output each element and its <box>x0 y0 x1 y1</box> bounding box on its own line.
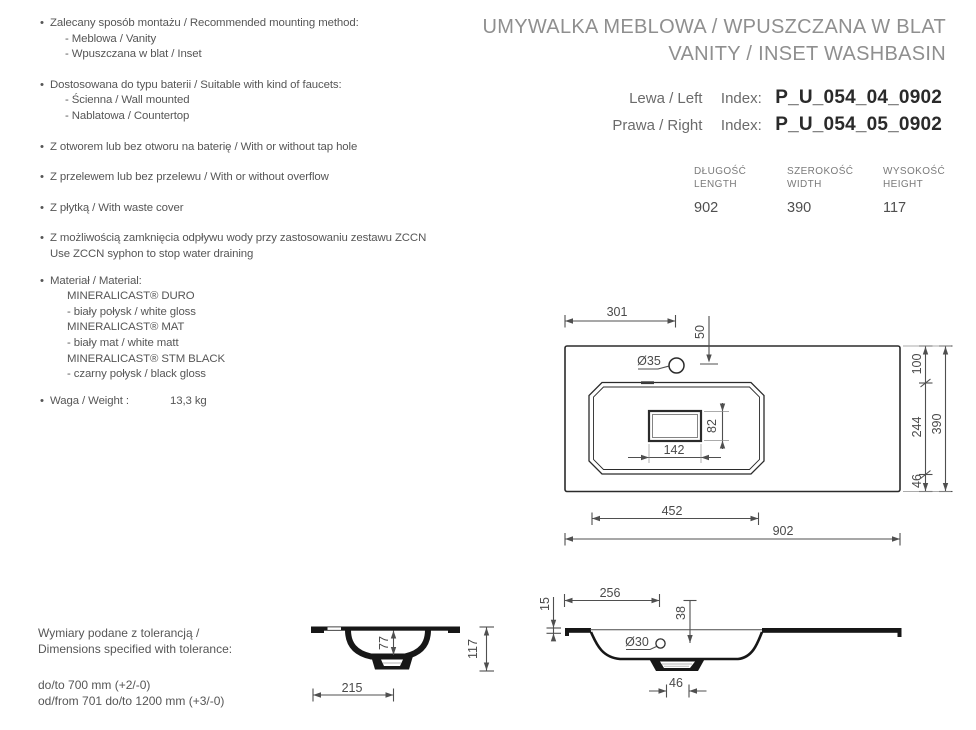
dim-301: 301 <box>607 306 628 318</box>
feature-waste-cover: •Z płytką / With waste cover <box>40 201 522 217</box>
dim-244: 244 <box>911 417 923 438</box>
index-right-code: P_U_054_05_0902 <box>775 114 942 135</box>
page-title: UMYWALKA MEBLOWA / WPUSZCZANA W BLAT VAN… <box>483 14 946 68</box>
feature-mounting: •Zalecany sposób montażu / Recommended m… <box>40 16 522 63</box>
page-title-line1: UMYWALKA MEBLOWA / WPUSZCZANA W BLAT <box>483 14 946 41</box>
dim-46-side: 46 <box>669 677 683 689</box>
bullet-icon: • <box>40 140 50 156</box>
dim-256: 256 <box>600 587 621 599</box>
dim-dia30: Ø30 <box>625 636 649 648</box>
dim-215: 215 <box>342 682 363 694</box>
width-label-pl: SZEROKOŚĆ <box>787 165 883 178</box>
index-row-right: Prawa / Right Index: P_U_054_05_0902 <box>612 114 942 141</box>
dim-50: 50 <box>694 325 706 339</box>
index-right-label: Prawa / Right <box>612 117 702 134</box>
page-title-line2: VANITY / INSET WASHBASIN <box>483 41 946 68</box>
size-table: DŁUGOŚĆ LENGTH 902 SZEROKOŚĆ WIDTH 390 W… <box>694 165 945 216</box>
feature-faucets-sub1: - Ścienna / Wall mounted <box>40 93 522 109</box>
feature-zccn: •Z możliwością zamknięcia odpływu wody p… <box>40 231 522 262</box>
feature-overflow-text: Z przelewem lub bez przelewu / With or w… <box>50 171 329 183</box>
tolerance-rule1: do/to 700 mm (+2/-0) <box>38 678 232 694</box>
height-value: 117 <box>883 200 945 216</box>
dim-142: 142 <box>664 444 685 456</box>
feature-mounting-sub1: - Meblowa / Vanity <box>40 32 522 48</box>
height-label-en: HEIGHT <box>883 178 945 191</box>
height-label-pl: WYSOKOŚĆ <box>883 165 945 178</box>
tolerance-rule2: od/from 701 do/to 1200 mm (+3/-0) <box>38 694 232 710</box>
material-mat-desc: - biały mat / white matt <box>40 336 522 352</box>
feature-tap-hole: •Z otworem lub bez otworu na baterię / W… <box>40 140 522 156</box>
material-stm-black: MINERALICAST® STM BLACK <box>40 352 522 368</box>
feature-tap-hole-text: Z otworem lub bez otworu na baterię / Wi… <box>50 141 357 153</box>
dim-15: 15 <box>539 597 551 611</box>
feature-material: •Materiał / Material: MINERALICAST® DURO… <box>40 274 522 383</box>
index-row-left: Lewa / Left Index: P_U_054_04_0902 <box>612 87 942 114</box>
material-mat: MINERALICAST® MAT <box>40 320 522 336</box>
bullet-icon: • <box>40 394 50 410</box>
front-view-linework <box>311 627 494 702</box>
material-stm-black-desc: - czarny połysk / black gloss <box>40 367 522 383</box>
dim-902: 902 <box>773 525 794 537</box>
length-label-pl: DŁUGOŚĆ <box>694 165 787 178</box>
feature-list: •Zalecany sposób montażu / Recommended m… <box>40 16 522 424</box>
feature-faucets: •Dostosowana do typu baterii / Suitable … <box>40 78 522 125</box>
tolerance-line1: Wymiary podane z tolerancją / <box>38 626 232 642</box>
bullet-icon: • <box>40 201 50 217</box>
weight-value: 13,3 kg <box>170 394 207 410</box>
size-col-width: SZEROKOŚĆ WIDTH 390 <box>787 165 883 216</box>
feature-zccn-line2: Use ZCCN syphon to stop water draining <box>40 247 522 263</box>
side-view-linework <box>547 594 902 698</box>
material-duro: MINERALICAST® DURO <box>40 289 522 305</box>
top-view-linework <box>565 315 953 546</box>
feature-faucets-sub2: - Nablatowa / Countertop <box>40 109 522 125</box>
feature-material-title: Materiał / Material: <box>50 275 142 287</box>
index-left-code: P_U_054_04_0902 <box>775 87 942 108</box>
dim-452: 452 <box>662 505 683 517</box>
feature-mounting-sub2: - Wpuszczana w blat / Inset <box>40 47 522 63</box>
index-block: Lewa / Left Index: P_U_054_04_0902 Prawa… <box>612 87 942 141</box>
bullet-icon: • <box>40 78 50 94</box>
width-value: 390 <box>787 200 883 216</box>
material-duro-desc: - biały połysk / white gloss <box>40 305 522 321</box>
feature-waste-cover-text: Z płytką / With waste cover <box>50 202 183 214</box>
dim-100: 100 <box>911 354 923 375</box>
feature-faucets-title: Dostosowana do typu baterii / Suitable w… <box>50 79 342 91</box>
bullet-icon: • <box>40 231 50 247</box>
bullet-icon: • <box>40 274 50 290</box>
bullet-icon: • <box>40 16 50 32</box>
tolerance-line2: Dimensions specified with tolerance: <box>38 642 232 658</box>
length-label-en: LENGTH <box>694 178 787 191</box>
feature-zccn-line1: Z możliwością zamknięcia odpływu wody pr… <box>50 232 426 244</box>
weight-label: Waga / Weight : <box>50 395 129 407</box>
dim-77: 77 <box>378 636 390 650</box>
dim-390: 390 <box>931 414 943 435</box>
index-left-label: Lewa / Left <box>629 90 702 107</box>
dim-38: 38 <box>675 606 687 620</box>
dim-82: 82 <box>706 419 718 433</box>
tolerance-note: Wymiary podane z tolerancją / Dimensions… <box>38 626 232 709</box>
feature-weight: •Waga / Weight : 13,3 kg <box>40 394 522 410</box>
size-col-length: DŁUGOŚĆ LENGTH 902 <box>694 165 787 216</box>
dim-117: 117 <box>467 639 479 659</box>
width-label-en: WIDTH <box>787 178 883 191</box>
length-value: 902 <box>694 200 787 216</box>
dim-dia35: Ø35 <box>637 355 661 367</box>
index-word: Index: <box>721 117 762 134</box>
feature-overflow: •Z przelewem lub bez przelewu / With or … <box>40 170 522 186</box>
feature-mounting-title: Zalecany sposób montażu / Recommended mo… <box>50 17 359 29</box>
index-word: Index: <box>721 90 762 107</box>
size-col-height: WYSOKOŚĆ HEIGHT 117 <box>883 165 945 216</box>
dim-46-plan: 46 <box>911 474 923 488</box>
bullet-icon: • <box>40 170 50 186</box>
